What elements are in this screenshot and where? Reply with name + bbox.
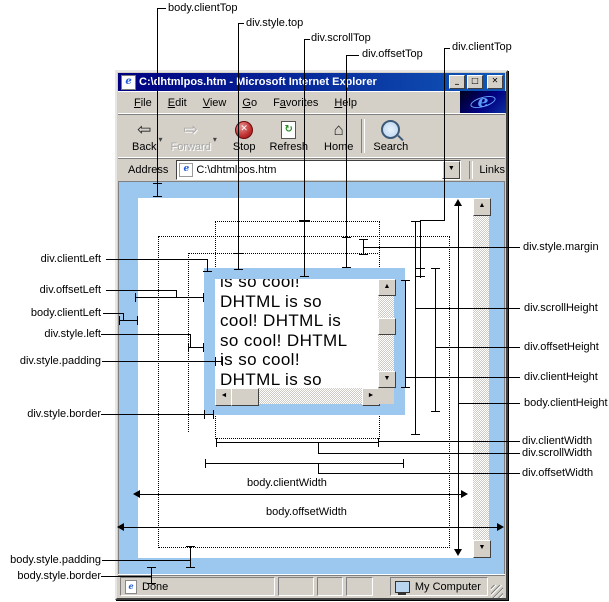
annotation-line [216,438,217,447]
annotation-line [102,361,223,362]
annotation-line [103,313,124,314]
annotation-line [186,546,195,547]
annotation-line [222,357,223,366]
annotation-line [101,576,152,577]
annotation-line [157,8,166,9]
annotation-line [318,463,319,473]
annotation-line [188,347,204,348]
annotation-label-div-offsetWidth: div.offsetWidth [522,467,593,479]
annotation-line [420,220,445,221]
positioned-div: is so cool! DHTML is so cool! DHTML is s… [204,268,405,415]
annotation-label-body-style-padding: body.style.padding [0,554,101,566]
annotation-line [363,239,364,255]
div-scroll-down-icon[interactable]: ▼ [378,371,396,388]
annotation-line [318,453,520,454]
annotation-line [416,276,425,277]
annotation-line [300,276,309,277]
annotation-line [234,253,243,254]
annotation-label-div-scrollWidth: div.scrollWidth [522,447,592,459]
annotation-line [234,269,243,270]
annotation-line [204,410,205,419]
annotation-label-div-clientTop: div.clientTop [452,41,512,53]
annotation-line [216,442,379,443]
annotation-line [213,410,214,419]
div-horizontal-scrollbar[interactable]: ◄ ► [215,388,378,404]
annotation-line [444,48,445,221]
annotation-line [203,293,204,302]
annotation-line [153,183,162,184]
dhtml-positioning-diagram: e C:\dhtmlpos.htm - Microsoft Internet E… [0,0,609,602]
annotation-line [188,343,189,352]
annotation-line [416,308,520,309]
annotation-line [299,220,310,222]
annotation-line [147,583,156,584]
annotation-line [406,377,520,378]
arrowhead-up [454,199,462,206]
annotation-line [119,320,138,321]
annotation-line [102,560,191,561]
annotation-line [151,567,152,584]
annotation-line [459,403,520,404]
annotation-line [137,316,138,325]
annotation-line [416,268,425,269]
annotation-label-body-clientWidth: body.clientWidth [247,477,327,489]
annotation-line [435,268,436,412]
annotation-line [138,494,464,495]
annotation-label-div-style-top: div.style.top [246,17,303,29]
arrowhead-left [133,490,140,498]
arrowhead-right [461,490,468,498]
arrowhead-right [497,523,504,531]
annotation-line [458,204,459,549]
annotation-line [364,247,520,248]
annotation-label-div-scrollHeight: div.scrollHeight [524,302,598,314]
annotation-line [359,239,368,240]
annotation-line [101,334,191,335]
annotation-line [379,441,520,442]
annotation-line [205,463,404,464]
annotation-line [420,220,421,278]
annotation-line [415,221,416,435]
annotation-line [411,434,420,435]
annotation-line [378,438,379,447]
annotation-line [411,221,420,222]
annotation-line [147,567,156,568]
annotation-label-body-clientTop: body.clientTop [168,2,238,14]
annotation-line [190,546,191,568]
annotation-label-div-offsetTop: div.offsetTop [362,48,423,60]
annotation-line [342,267,351,268]
annotation-label-body-offsetWidth: body.offsetWidth [266,506,347,518]
annotation-line [431,411,440,412]
annotation-line [119,316,120,325]
annotation-line [153,196,162,197]
annotation-line [122,527,500,528]
annotation-line [342,237,351,238]
annotation-line [186,567,195,568]
annotation-label-div-clientLeft: div.clientLeft [0,253,101,265]
annotation-label-div-style-margin: div.style.margin [523,241,599,253]
div-scroll-up-icon[interactable]: ▲ [378,279,396,296]
annotation-line [203,271,212,272]
annotation-line [405,280,406,388]
annotation-line [436,347,520,348]
annotation-label-div-clientHeight: div.clientHeight [524,371,598,383]
annotation-label-body-clientLeft: body.clientLeft [0,307,101,319]
annotation-label-div-clientWidth: div.clientWidth [522,435,592,447]
annotation-line [238,23,239,270]
div-scrollbar-corner [378,388,394,404]
annotation-label-body-clientHeight: body.clientHeight [524,397,608,409]
div-margin-guide-top [188,253,378,254]
div-hscroll-thumb[interactable] [231,388,259,406]
annotation-line [401,280,410,281]
annotation-line [157,8,158,197]
annotation-line [106,290,177,291]
div-vscroll-thumb[interactable] [378,318,396,335]
annotation-line [106,259,208,260]
annotation-line [205,459,206,468]
annotation-line [318,473,520,474]
annotation-line [359,254,368,255]
annotation-line [215,357,216,366]
div-text: is so cool! DHTML is so cool! DHTML is s… [215,279,378,388]
arrowhead-down [454,549,462,556]
annotation-label-body-style-border: body.style.border [0,570,101,582]
annotation-label-div-style-left: div.style.left [0,328,101,340]
annotation-overlay: is so cool! DHTML is so cool! DHTML is s… [0,0,609,602]
annotation-label-div-offsetLeft: div.offsetLeft [0,284,101,296]
annotation-label-div-scrollTop: div.scrollTop [311,32,371,44]
annotation-label-div-style-padding: div.style.padding [0,355,101,367]
annotation-line [403,459,404,468]
annotation-line [401,387,410,388]
annotation-line [346,55,359,56]
annotation-line [190,334,191,348]
annotation-line [304,39,305,277]
div-vertical-scrollbar[interactable]: ▲ ▼ [378,279,394,388]
arrowhead-left [117,523,124,531]
annotation-label-div-style-border: div.style.border [0,408,101,420]
annotation-line [431,268,440,269]
annotation-line [135,293,136,302]
annotation-line [318,442,319,453]
annotation-line [203,343,204,352]
annotation-label-div-offsetHeight: div.offsetHeight [524,341,599,353]
annotation-line [101,414,214,415]
annotation-line [135,297,204,298]
